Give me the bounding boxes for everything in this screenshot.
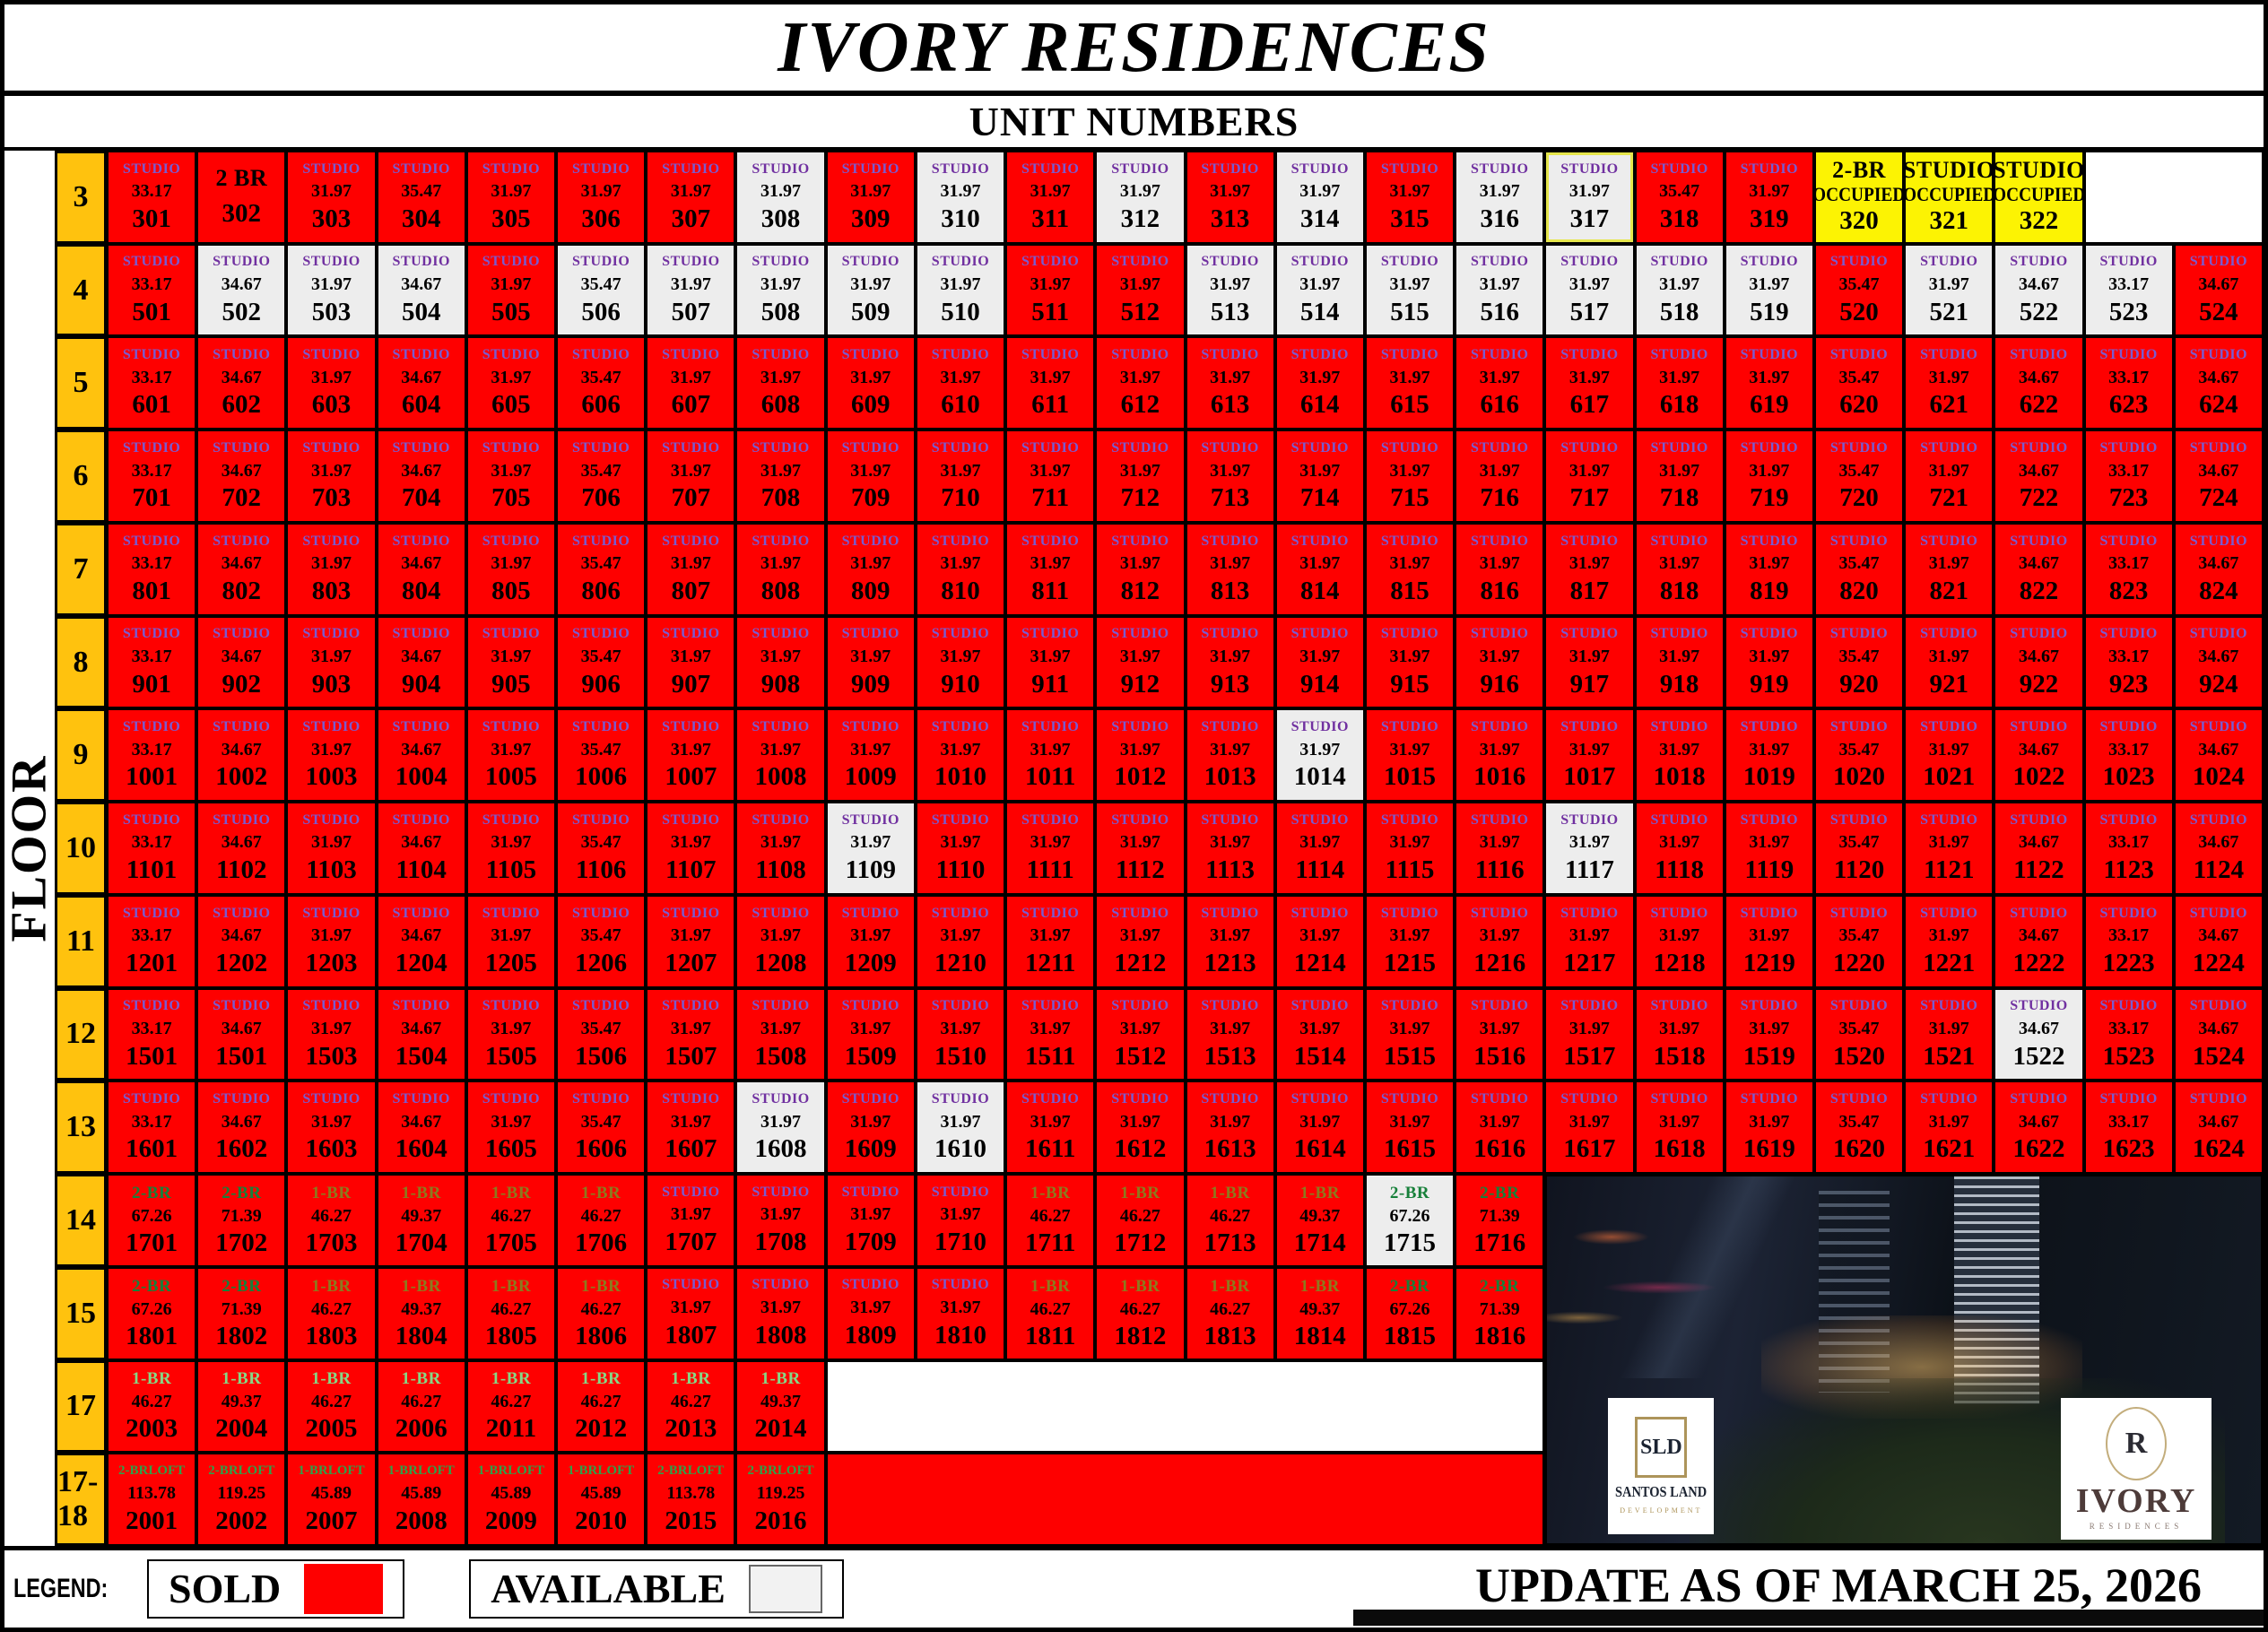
unit-1110: STUDIO31.971110 bbox=[916, 802, 1005, 895]
unit-type: STUDIO bbox=[302, 907, 360, 921]
unit-area: 33.17 bbox=[2108, 369, 2149, 386]
unit-area: 31.97 bbox=[671, 741, 711, 759]
unit-number: 301 bbox=[132, 206, 171, 232]
unit-area: 31.97 bbox=[760, 554, 801, 572]
unit-number: 611 bbox=[1031, 392, 1069, 418]
unit-1519: STUDIO31.971519 bbox=[1725, 988, 1814, 1081]
unit-area: 31.97 bbox=[940, 182, 980, 200]
unit-number: 1807 bbox=[665, 1323, 717, 1349]
unit-area: 31.97 bbox=[671, 1298, 711, 1316]
unit-number: 1104 bbox=[396, 857, 447, 883]
unit-number: 1521 bbox=[1923, 1044, 1975, 1070]
unit-number: 1208 bbox=[755, 951, 807, 977]
unit-number: 1524 bbox=[2193, 1044, 2245, 1070]
unit-number: 508 bbox=[761, 299, 801, 326]
floor-label-5: 5 bbox=[55, 336, 107, 430]
unit-type: STUDIO bbox=[2100, 441, 2158, 456]
unit-area: 46.27 bbox=[311, 1393, 352, 1411]
unit-1103: STUDIO31.971103 bbox=[286, 802, 376, 895]
unit-1008: STUDIO31.971008 bbox=[735, 708, 825, 802]
unit-609: STUDIO31.97609 bbox=[826, 336, 916, 430]
unit-type: STUDIO bbox=[1201, 255, 1258, 269]
unit-area: 31.97 bbox=[1929, 833, 1969, 851]
unit-801: STUDIO33.17801 bbox=[107, 523, 196, 616]
unit-1503: STUDIO31.971503 bbox=[286, 988, 376, 1081]
unit-number: 810 bbox=[941, 578, 980, 604]
unit-number: 801 bbox=[132, 578, 171, 604]
unit-area: 31.97 bbox=[1210, 647, 1250, 665]
unit-910: STUDIO31.97910 bbox=[916, 616, 1005, 709]
unit-type: STUDIO bbox=[2010, 348, 2067, 362]
unit-1601: STUDIO33.171601 bbox=[107, 1081, 196, 1174]
unit-type: 1-BR bbox=[1030, 1278, 1070, 1295]
unit-area: 31.97 bbox=[1749, 833, 1789, 851]
unit-area: 34.67 bbox=[401, 369, 441, 386]
unit-number: 1803 bbox=[306, 1324, 358, 1350]
unit-type: STUDIO bbox=[1111, 907, 1169, 921]
unit-area: 31.97 bbox=[760, 1205, 801, 1223]
unit-area: 34.67 bbox=[2198, 833, 2238, 851]
unit-1507: STUDIO31.971507 bbox=[646, 988, 735, 1081]
unit-518: STUDIO31.97518 bbox=[1635, 244, 1725, 337]
unit-type: STUDIO bbox=[932, 348, 989, 362]
ivory-monogram-icon: R bbox=[2106, 1407, 2167, 1480]
unit-type: STUDIO bbox=[2190, 255, 2247, 269]
unit-area: 31.97 bbox=[940, 1298, 980, 1316]
unit-type: STUDIO bbox=[1021, 441, 1079, 456]
unit-number: 608 bbox=[761, 392, 801, 418]
unit-type: STUDIO bbox=[1381, 162, 1438, 177]
unit-618: STUDIO31.97618 bbox=[1635, 336, 1725, 430]
unit-type: STUDIO bbox=[662, 907, 719, 921]
unit-area: 31.97 bbox=[850, 554, 891, 572]
unit-type: STUDIO bbox=[1920, 720, 1977, 734]
unit-type: STUDIO bbox=[1920, 348, 1977, 362]
unit-number: 1109 bbox=[846, 857, 896, 883]
unit-type: STUDIO bbox=[662, 627, 719, 641]
unit-number: 1606 bbox=[575, 1136, 627, 1162]
unit-303: STUDIO31.97303 bbox=[286, 151, 376, 244]
unit-type: STUDIO bbox=[1201, 813, 1258, 828]
unit-number: 1802 bbox=[215, 1324, 267, 1350]
unit-area: 34.67 bbox=[401, 554, 441, 572]
floor-label-3: 3 bbox=[55, 151, 107, 244]
unit-type: STUDIO bbox=[1741, 627, 1798, 641]
unit-area: 46.27 bbox=[132, 1393, 172, 1411]
unit-number: 321 bbox=[1930, 208, 1969, 234]
unit-type: STUDIO bbox=[932, 441, 989, 456]
unit-type: 1-BR bbox=[581, 1370, 621, 1387]
unit-type: STUDIO bbox=[932, 255, 989, 269]
unit-number: 2008 bbox=[395, 1508, 448, 1534]
floor-label-6: 6 bbox=[55, 430, 107, 523]
unit-area: 34.67 bbox=[2198, 369, 2238, 386]
unit-904: STUDIO34.67904 bbox=[377, 616, 466, 709]
unit-1106: STUDIO35.471106 bbox=[556, 802, 646, 895]
unit-number: 916 bbox=[1480, 672, 1519, 698]
unit-area: 119.25 bbox=[217, 1484, 265, 1502]
unit-area: 34.67 bbox=[222, 554, 262, 572]
unit-type: STUDIO bbox=[662, 1185, 719, 1200]
unit-type: STUDIO bbox=[123, 348, 180, 362]
unit-number: 1611 bbox=[1025, 1136, 1075, 1162]
unit-area: 34.67 bbox=[2198, 926, 2238, 944]
unit-number: 815 bbox=[1390, 578, 1429, 604]
floor-label-14: 14 bbox=[55, 1174, 107, 1267]
unit-310: STUDIO31.97310 bbox=[916, 151, 1005, 244]
unit-number: 1806 bbox=[575, 1324, 627, 1350]
unit-area: 31.97 bbox=[940, 926, 980, 944]
unit-number: 1812 bbox=[1114, 1324, 1166, 1350]
unit-area: 31.97 bbox=[940, 275, 980, 293]
unit-723: STUDIO33.17723 bbox=[2084, 430, 2174, 523]
unit-area: 33.17 bbox=[132, 833, 172, 851]
unit-type: STUDIO bbox=[662, 255, 719, 269]
unit-area: 46.27 bbox=[491, 1207, 531, 1225]
unit-number: 707 bbox=[672, 485, 711, 511]
unit-617: STUDIO31.97617 bbox=[1544, 336, 1634, 430]
unit-308: STUDIO31.97308 bbox=[735, 151, 825, 244]
unit-area: 31.97 bbox=[1299, 833, 1340, 851]
unit-number: 710 bbox=[941, 485, 980, 511]
unit-1815: 2-BR67.261815 bbox=[1365, 1267, 1455, 1360]
unit-type: STUDIO bbox=[1830, 348, 1888, 362]
unit-area: 34.67 bbox=[222, 369, 262, 386]
unit-319: STUDIO31.97319 bbox=[1725, 151, 1814, 244]
unit-802: STUDIO34.67802 bbox=[196, 523, 286, 616]
unit-number: 920 bbox=[1839, 672, 1879, 698]
unit-1520: STUDIO35.471520 bbox=[1814, 988, 1904, 1081]
unit-area: 35.47 bbox=[581, 369, 621, 386]
unit-number: 1220 bbox=[1833, 951, 1885, 977]
unit-area: 31.97 bbox=[940, 833, 980, 851]
unit-number: 603 bbox=[312, 392, 352, 418]
unit-1621: STUDIO31.971621 bbox=[1904, 1081, 1994, 1174]
unit-911: STUDIO31.97911 bbox=[1005, 616, 1095, 709]
unit-322: STUDIOOCCUPIED322 bbox=[1994, 151, 2083, 244]
unit-701: STUDIO33.17701 bbox=[107, 430, 196, 523]
unit-type: STUDIO bbox=[1650, 627, 1708, 641]
unit-number: 922 bbox=[2020, 672, 2059, 698]
unit-number: 1714 bbox=[1294, 1230, 1346, 1256]
unit-type: STUDIO bbox=[302, 348, 360, 362]
unit-type: STUDIO bbox=[1111, 627, 1169, 641]
unit-area: 31.97 bbox=[491, 647, 531, 665]
unit-number: 905 bbox=[491, 672, 531, 698]
unit-921: STUDIO31.97921 bbox=[1904, 616, 1994, 709]
floor-label-15: 15 bbox=[55, 1267, 107, 1360]
unit-number: 1624 bbox=[2193, 1136, 2245, 1162]
unit-number: 712 bbox=[1121, 485, 1160, 511]
unit-number: 1123 bbox=[2103, 857, 2153, 883]
unit-area: 34.67 bbox=[2198, 554, 2238, 572]
empty-cells-floor-3 bbox=[2084, 151, 2264, 244]
unit-number: 1124 bbox=[2194, 857, 2244, 883]
unit-number: 1105 bbox=[486, 857, 536, 883]
unit-type: STUDIO bbox=[1920, 255, 1977, 269]
unit-2007: 1-BRLOFT45.892007 bbox=[286, 1453, 376, 1546]
unit-type: STUDIO bbox=[123, 999, 180, 1013]
unit-area: 31.97 bbox=[1659, 275, 1699, 293]
unit-type: STUDIO bbox=[1381, 627, 1438, 641]
unit-1514: STUDIO31.971514 bbox=[1275, 988, 1365, 1081]
unit-type: STUDIO bbox=[662, 999, 719, 1013]
unit-area: 31.97 bbox=[1299, 275, 1340, 293]
unit-type: STUDIO bbox=[1291, 627, 1349, 641]
unit-1618: STUDIO31.971618 bbox=[1635, 1081, 1725, 1174]
unit-area: 31.97 bbox=[1659, 741, 1699, 759]
unit-area: 113.78 bbox=[666, 1484, 715, 1502]
unit-area: 34.67 bbox=[401, 741, 441, 759]
unit-number: 622 bbox=[2020, 392, 2059, 418]
unit-type: STUDIO bbox=[842, 534, 899, 549]
unit-1522: STUDIO34.671522 bbox=[1994, 988, 2083, 1081]
unit-number: 1209 bbox=[845, 951, 897, 977]
unit-area: 31.97 bbox=[1480, 1113, 1520, 1131]
unit-number: 1203 bbox=[306, 951, 358, 977]
unit-811: STUDIO31.97811 bbox=[1005, 523, 1095, 616]
unit-number: 1618 bbox=[1654, 1136, 1706, 1162]
unit-area: 31.97 bbox=[760, 182, 801, 200]
unit-area: 35.47 bbox=[1839, 741, 1880, 759]
unit-area: 31.97 bbox=[311, 1113, 352, 1131]
unit-area: 71.39 bbox=[1480, 1207, 1520, 1225]
unit-number: 2004 bbox=[215, 1416, 267, 1442]
unit-type: STUDIO bbox=[1471, 627, 1528, 641]
unit-type: STUDIO bbox=[302, 534, 360, 549]
unit-1208: STUDIO31.971208 bbox=[735, 895, 825, 988]
unit-area: 33.17 bbox=[132, 369, 172, 386]
unit-area: 35.47 bbox=[1839, 1020, 1880, 1037]
unit-1016: STUDIO31.971016 bbox=[1455, 708, 1544, 802]
unit-1118: STUDIO31.971118 bbox=[1635, 802, 1725, 895]
unit-718: STUDIO31.97718 bbox=[1635, 430, 1725, 523]
unit-1114: STUDIO31.971114 bbox=[1275, 802, 1365, 895]
unit-type: STUDIO bbox=[1560, 441, 1618, 456]
unit-number: 306 bbox=[581, 206, 621, 232]
unit-type: STUDIO bbox=[1381, 999, 1438, 1013]
unit-number: 1815 bbox=[1384, 1324, 1436, 1350]
unit-2004: 1-BR49.372004 bbox=[196, 1360, 286, 1454]
unit-number: 701 bbox=[132, 485, 171, 511]
unit-806: STUDIO35.47806 bbox=[556, 523, 646, 616]
unit-1619: STUDIO31.971619 bbox=[1725, 1081, 1814, 1174]
unit-number: 1122 bbox=[2013, 857, 2064, 883]
unit-type: STUDIO bbox=[752, 1092, 809, 1107]
unit-number: 1212 bbox=[1114, 951, 1166, 977]
unit-area: 31.97 bbox=[940, 554, 980, 572]
unit-number: 1223 bbox=[2103, 951, 2155, 977]
unit-number: 315 bbox=[1390, 206, 1429, 232]
unit-type: STUDIO bbox=[1650, 813, 1708, 828]
unit-707: STUDIO31.97707 bbox=[646, 430, 735, 523]
unit-type: STUDIO bbox=[1021, 1092, 1079, 1107]
unit-type: STUDIO bbox=[842, 813, 899, 828]
unit-number: 1623 bbox=[2103, 1136, 2155, 1162]
unit-area: 31.97 bbox=[1030, 926, 1071, 944]
unit-area: 35.47 bbox=[581, 1113, 621, 1131]
unit-area: 45.89 bbox=[311, 1484, 352, 1502]
unit-area: 34.67 bbox=[2019, 926, 2059, 944]
unit-1708: STUDIO31.971708 bbox=[735, 1174, 825, 1267]
unit-area: 31.97 bbox=[491, 554, 531, 572]
unit-505: STUDIO31.97505 bbox=[466, 244, 556, 337]
unit-2013: 1-BR46.272013 bbox=[646, 1360, 735, 1454]
unit-area: 31.97 bbox=[1659, 1020, 1699, 1037]
unit-type: STUDIO bbox=[1650, 907, 1708, 921]
unit-1023: STUDIO33.171023 bbox=[2084, 708, 2174, 802]
unit-type: 1-BR bbox=[402, 1370, 441, 1387]
unit-1523: STUDIO33.171523 bbox=[2084, 988, 2174, 1081]
unit-type: STUDIO bbox=[1021, 627, 1079, 641]
unit-number: 820 bbox=[1839, 578, 1879, 604]
unit-511: STUDIO31.97511 bbox=[1005, 244, 1095, 337]
unit-number: 607 bbox=[672, 392, 711, 418]
unit-type: STUDIO bbox=[752, 1185, 809, 1200]
unit-area: 31.97 bbox=[491, 741, 531, 759]
unit-709: STUDIO31.97709 bbox=[826, 430, 916, 523]
unit-1224: STUDIO34.671224 bbox=[2174, 895, 2264, 988]
unit-area: 31.97 bbox=[940, 741, 980, 759]
unit-number: 617 bbox=[1570, 392, 1610, 418]
unit-type: STUDIO bbox=[752, 813, 809, 828]
unit-area: 31.97 bbox=[760, 741, 801, 759]
unit-number: 2003 bbox=[126, 1416, 178, 1442]
unit-number: 1612 bbox=[1114, 1136, 1166, 1162]
available-color-swatch bbox=[749, 1565, 822, 1613]
unit-area: 119.25 bbox=[757, 1484, 805, 1502]
unit-611: STUDIO31.97611 bbox=[1005, 336, 1095, 430]
unit-type: STUDIO bbox=[2010, 441, 2067, 456]
unit-523: STUDIO33.17523 bbox=[2084, 244, 2174, 337]
unit-type: STUDIO bbox=[482, 1092, 540, 1107]
unit-area: 31.97 bbox=[1480, 833, 1520, 851]
unit-area: 46.27 bbox=[401, 1393, 441, 1411]
unit-1716: 2-BR71.391716 bbox=[1455, 1174, 1544, 1267]
unit-1108: STUDIO31.971108 bbox=[735, 802, 825, 895]
unit-type: STUDIO bbox=[1560, 162, 1618, 177]
unit-605: STUDIO31.97605 bbox=[466, 336, 556, 430]
unit-number: 513 bbox=[1211, 299, 1250, 326]
unit-type: STUDIO bbox=[1471, 813, 1528, 828]
unit-number: 714 bbox=[1300, 485, 1340, 511]
unit-area: 67.26 bbox=[132, 1207, 172, 1225]
unit-area: 45.89 bbox=[581, 1484, 621, 1502]
unit-type: 1-BR bbox=[760, 1370, 800, 1387]
unit-type: STUDIO bbox=[1291, 813, 1349, 828]
unit-type: STUDIO bbox=[393, 348, 450, 362]
unit-number: 803 bbox=[312, 578, 352, 604]
unit-area: 31.97 bbox=[1299, 462, 1340, 480]
unit-area: 35.47 bbox=[581, 554, 621, 572]
unit-619: STUDIO31.97619 bbox=[1725, 336, 1814, 430]
unit-type: STUDIO bbox=[1830, 534, 1888, 549]
unit-number: 1201 bbox=[126, 951, 178, 977]
unit-number: 511 bbox=[1031, 299, 1069, 326]
unit-area: 31.97 bbox=[1390, 647, 1430, 665]
unit-number: 821 bbox=[1930, 578, 1969, 604]
unit-area: 34.67 bbox=[2019, 275, 2059, 293]
unit-number: 719 bbox=[1750, 485, 1789, 511]
unit-314: STUDIO31.97314 bbox=[1275, 151, 1365, 244]
grid-area: FLOOR SLD SANTOS LAND DEVELOPMENT R IVOR… bbox=[4, 151, 2264, 1546]
unit-area: 31.97 bbox=[1120, 554, 1160, 572]
unit-1709: STUDIO31.971709 bbox=[826, 1174, 916, 1267]
unit-923: STUDIO33.17923 bbox=[2084, 616, 2174, 709]
unit-313: STUDIO31.97313 bbox=[1186, 151, 1275, 244]
unit-number: 2013 bbox=[665, 1416, 717, 1442]
unit-type: 1-BRLOFT bbox=[388, 1464, 455, 1478]
unit-area: 33.17 bbox=[2108, 554, 2149, 572]
unit-820: STUDIO35.47820 bbox=[1814, 523, 1904, 616]
unit-913: STUDIO31.97913 bbox=[1186, 616, 1275, 709]
unit-area: 34.67 bbox=[2198, 741, 2238, 759]
unit-area: 31.97 bbox=[1299, 182, 1340, 200]
unit-area: 34.67 bbox=[401, 462, 441, 480]
unit-number: 501 bbox=[132, 299, 171, 326]
unit-number: 1021 bbox=[1923, 764, 1975, 790]
unit-type: 1-BR bbox=[491, 1278, 531, 1295]
unit-number: 1022 bbox=[2012, 764, 2064, 790]
unit-number: 906 bbox=[581, 672, 621, 698]
unit-area: 31.97 bbox=[1569, 926, 1610, 944]
unit-area: 31.97 bbox=[1480, 741, 1520, 759]
unit-type: STUDIO bbox=[393, 907, 450, 921]
unit-area: 34.67 bbox=[2198, 647, 2238, 665]
unit-area: 31.97 bbox=[1030, 647, 1071, 665]
unit-1117: STUDIO31.971117 bbox=[1544, 802, 1634, 895]
unit-type: STUDIO bbox=[2190, 999, 2247, 1013]
unit-occupied-label: OCCUPIED bbox=[1994, 185, 2083, 204]
unit-type: STUDIO bbox=[1021, 534, 1079, 549]
unit-1109: STUDIO31.971109 bbox=[826, 802, 916, 895]
unit-724: STUDIO34.67724 bbox=[2174, 430, 2264, 523]
unit-area: 34.67 bbox=[222, 275, 262, 293]
unit-type: STUDIO bbox=[1291, 999, 1349, 1013]
unit-type: STUDIO bbox=[1291, 720, 1349, 734]
unit-area: 31.97 bbox=[1659, 1113, 1699, 1131]
unit-number: 806 bbox=[581, 578, 621, 604]
unit-area: 31.97 bbox=[850, 182, 891, 200]
unit-902: STUDIO34.67902 bbox=[196, 616, 286, 709]
unit-1215: STUDIO31.971215 bbox=[1365, 895, 1455, 988]
unit-type: STUDIO bbox=[932, 813, 989, 828]
unit-number: 2002 bbox=[215, 1508, 267, 1534]
unit-608: STUDIO31.97608 bbox=[735, 336, 825, 430]
unit-number: 1011 bbox=[1025, 764, 1075, 790]
unit-area: 31.97 bbox=[491, 462, 531, 480]
unit-1809: STUDIO31.971809 bbox=[826, 1267, 916, 1360]
unit-area: 46.27 bbox=[581, 1393, 621, 1411]
unit-620: STUDIO35.47620 bbox=[1814, 336, 1904, 430]
unit-905: STUDIO31.97905 bbox=[466, 616, 556, 709]
unit-number: 604 bbox=[402, 392, 441, 418]
unit-808: STUDIO31.97808 bbox=[735, 523, 825, 616]
unit-number: 520 bbox=[1839, 299, 1879, 326]
unit-type: 2-BR bbox=[1832, 160, 1886, 180]
unit-area: 31.97 bbox=[1659, 554, 1699, 572]
unit-area: 31.97 bbox=[311, 182, 352, 200]
unit-type: STUDIO bbox=[572, 907, 630, 921]
unit-area: 31.97 bbox=[1390, 275, 1430, 293]
unit-number: 822 bbox=[2020, 578, 2059, 604]
unit-number: 1215 bbox=[1384, 951, 1436, 977]
unit-number: 1703 bbox=[306, 1230, 358, 1256]
unit-number: 907 bbox=[672, 672, 711, 698]
unit-number: 1715 bbox=[1384, 1230, 1436, 1256]
unit-type: 1-BR bbox=[402, 1185, 441, 1202]
unit-type: STUDIO bbox=[842, 348, 899, 362]
